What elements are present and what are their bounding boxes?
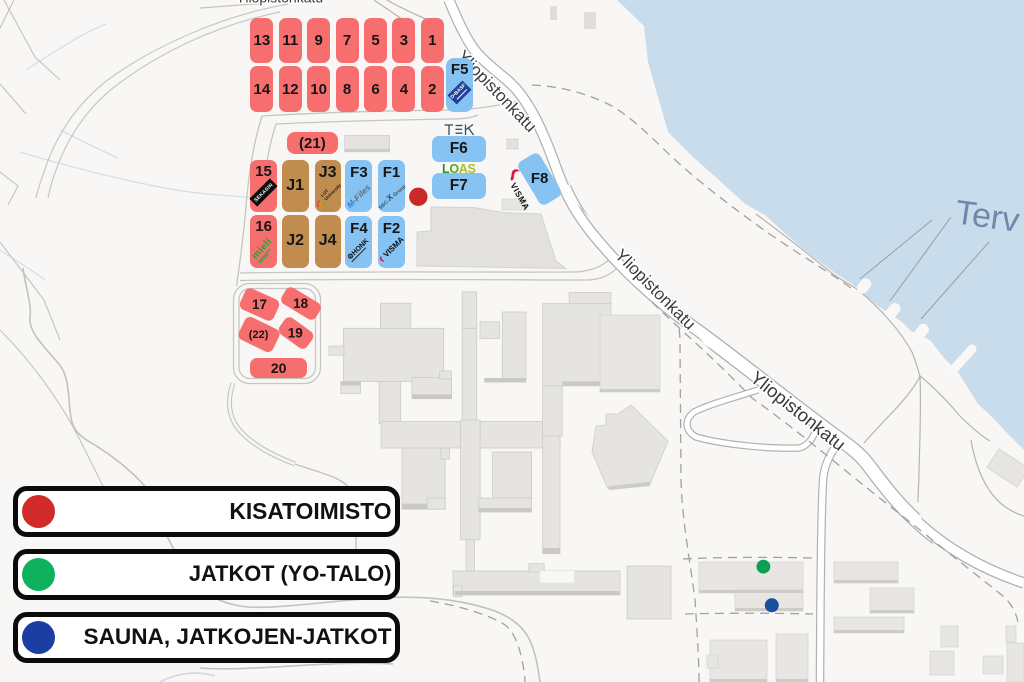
svg-text:Yliopistonkatu: Yliopistonkatu (236, 0, 323, 6)
svg-text:Yliopistonkatu: Yliopistonkatu (747, 367, 850, 455)
